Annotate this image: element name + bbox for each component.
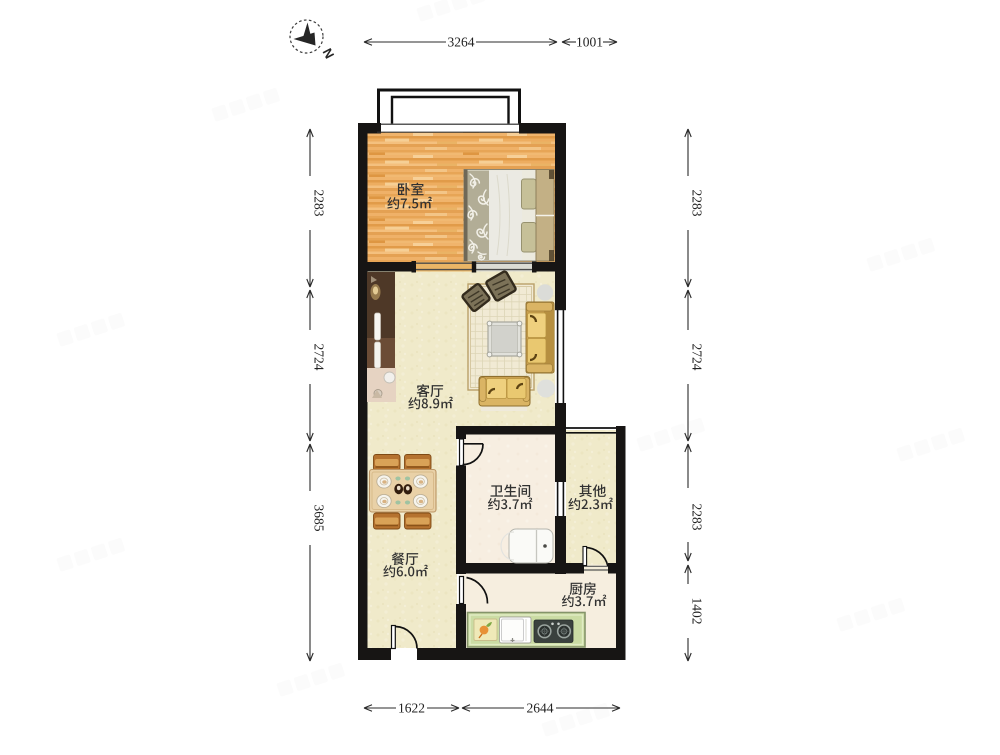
svg-text:2724: 2724 — [312, 344, 327, 371]
svg-text:3685: 3685 — [312, 505, 327, 532]
svg-text:2644: 2644 — [527, 701, 554, 716]
svg-text:2283: 2283 — [690, 504, 705, 531]
svg-text:1402: 1402 — [690, 598, 705, 625]
svg-text:1622: 1622 — [398, 701, 425, 716]
svg-text:2283: 2283 — [312, 190, 327, 217]
svg-text:3264: 3264 — [448, 35, 475, 50]
svg-text:2724: 2724 — [690, 344, 705, 371]
svg-text:1001: 1001 — [576, 35, 603, 50]
svg-text:2283: 2283 — [690, 190, 705, 217]
